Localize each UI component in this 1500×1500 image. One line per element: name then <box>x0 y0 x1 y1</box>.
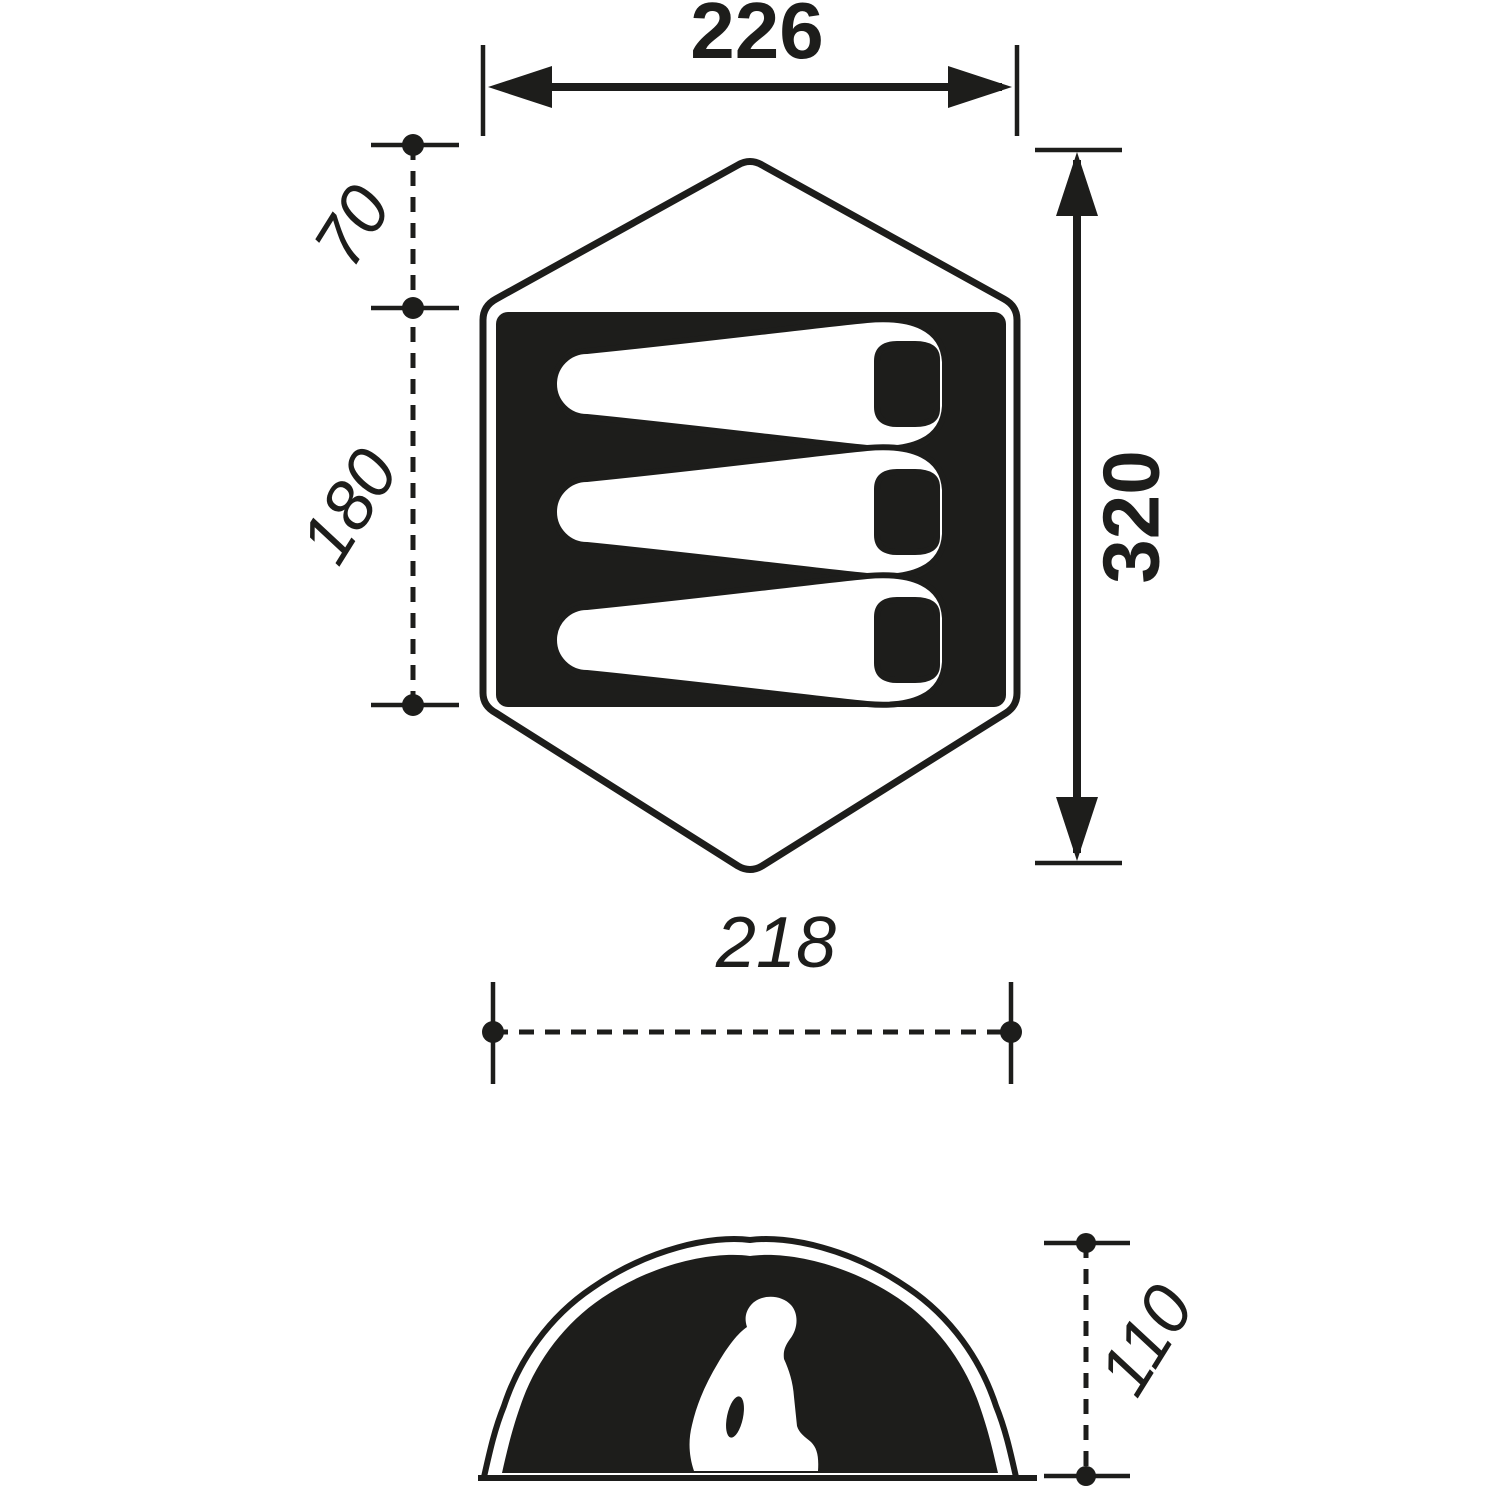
dim-total-length: 320 <box>1035 150 1176 863</box>
arrow-head-up <box>1056 152 1098 216</box>
floor-plan-view <box>483 162 1017 870</box>
dim-dot-left <box>482 1021 504 1043</box>
dim-dot-top <box>402 134 424 156</box>
dim-interior-height-label: 110 <box>1083 1272 1208 1408</box>
dim-dot-right <box>1000 1021 1022 1043</box>
dim-interior-height: 110 <box>1044 1233 1209 1486</box>
elevation-view <box>478 1239 1037 1478</box>
dim-dot-bottom <box>402 694 424 716</box>
dim-outer-width: 226 <box>483 0 1017 136</box>
dim-dot-bottom <box>1076 1466 1096 1486</box>
dim-dot-middle <box>402 297 424 319</box>
dim-porch-and-inner: 70 180 <box>285 134 459 716</box>
dim-inner-width: 218 <box>482 903 1022 1084</box>
arrow-head-right <box>948 66 1012 108</box>
tent-dimension-diagram: 226 70 180 320 <box>0 0 1500 1500</box>
dim-dot-top <box>1076 1233 1096 1253</box>
arrow-head-left <box>488 66 552 108</box>
dim-total-length-label: 320 <box>1087 450 1176 583</box>
diagram-svg: 226 70 180 320 <box>0 0 1500 1500</box>
dim-outer-width-label: 226 <box>690 0 823 75</box>
arrow-head-down <box>1056 797 1098 861</box>
dim-porch-depth-label: 70 <box>298 172 405 279</box>
dim-inner-depth-label: 180 <box>285 436 413 576</box>
dim-inner-width-label: 218 <box>715 903 836 983</box>
